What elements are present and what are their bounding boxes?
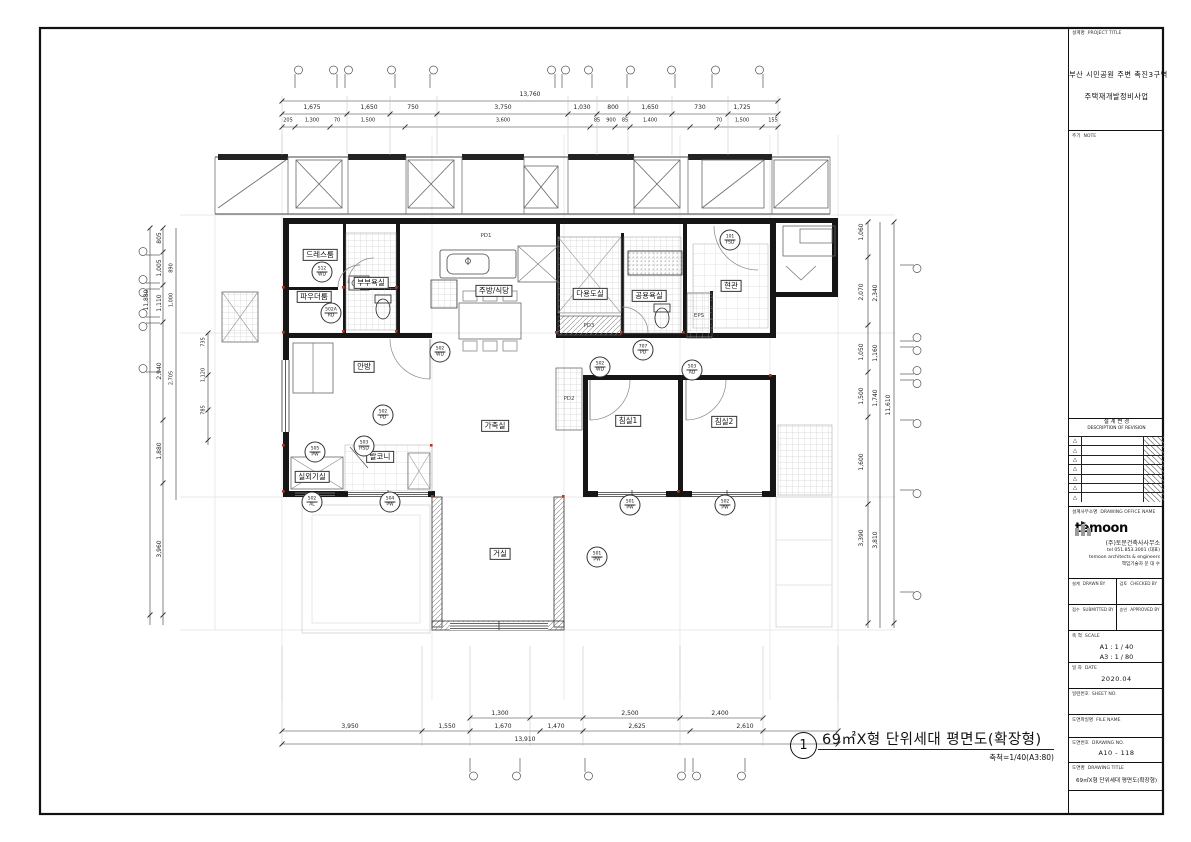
label-ko: 축 척 [1072, 634, 1082, 639]
revision-row: △ [1069, 492, 1164, 501]
label-ko: 설계사무소명 [1072, 510, 1097, 515]
tb-empty [1069, 790, 1164, 814]
tb-office-label: 설계사무소명DRAWING OFFICE NAME [1072, 509, 1155, 515]
revision-triangle-icon: △ [1069, 484, 1082, 492]
floor-plan-graphics [0, 0, 1191, 842]
tb-drawing-no: 도면번호DRAWING NO. A10 - 118 [1069, 737, 1164, 762]
tb-drawing-no-label: 도면번호DRAWING NO. [1072, 740, 1124, 746]
revision-row: △ [1069, 464, 1164, 473]
label-ko: 일 자 [1072, 666, 1082, 671]
revision-row: △ [1069, 455, 1164, 464]
label-en: DRAWN BY [1083, 581, 1105, 586]
office-name-en: temoon architects & engineers [1069, 555, 1160, 562]
revision-triangle-icon: △ [1069, 437, 1082, 445]
office-info: (주)토문건축사사무소 tel 051.853.3001 (대표) temoon… [1069, 539, 1164, 569]
tb-scale: 축 척SCALE A1 : 1 / 40 A3 : 1 / 80 [1069, 630, 1164, 662]
revision-hatch-cell [1143, 446, 1164, 454]
label-ko: 도면번호 [1072, 741, 1089, 746]
revision-hatch-cell [1143, 437, 1164, 445]
drawing-number: A10 - 118 [1069, 749, 1164, 757]
label-ko: 접수 [1072, 607, 1080, 612]
revision-triangle-icon: △ [1069, 465, 1082, 473]
label-en: DATE [1085, 666, 1097, 671]
living-balcony-walls [432, 497, 564, 630]
revision-hatch-cell [1143, 475, 1164, 483]
drawing-sheet: 13,760 1,675 1,650 750 3,750 1,030 800 1… [0, 0, 1191, 842]
revision-title-en: DESCRIPTION OF REVISION [1069, 426, 1164, 432]
drawn-by-cell: 설계DRAWN BY [1069, 578, 1117, 604]
revision-row: △ [1069, 445, 1164, 454]
signature-grid: 설계DRAWN BY 검토CHECKED BY 접수SUBMITTED BY 승… [1069, 578, 1164, 630]
label-en: FILE NAME [1096, 718, 1120, 723]
revision-desc-cell [1082, 465, 1143, 473]
revision-desc-cell [1082, 456, 1143, 464]
revision-desc-cell [1082, 493, 1143, 501]
office-tel: tel 051.853.3001 (대표) [1069, 548, 1160, 555]
tb-date: 일 자DATE 2020.04 [1069, 662, 1164, 688]
revision-hatch-cell [1143, 493, 1164, 501]
tb-signatures: 설계DRAWN BY 검토CHECKED BY 접수SUBMITTED BY 승… [1069, 578, 1164, 630]
revision-triangle-icon: △ [1069, 475, 1082, 483]
wet-areas [345, 233, 832, 495]
revision-desc-cell [1082, 446, 1143, 454]
submitted-by-cell: 접수SUBMITTED BY [1069, 604, 1117, 630]
label-en: DRAWING TITLE [1088, 766, 1124, 771]
label-en: SHEET NO. [1092, 692, 1117, 697]
label-en: SCALE [1085, 634, 1100, 639]
revision-triangle-icon: △ [1069, 456, 1082, 464]
tb-file-label: 도면파일명FILE NAME [1072, 717, 1121, 723]
tb-drawing-title-label: 도면명DRAWING TITLE [1072, 765, 1124, 771]
tb-revision: 설 계 변 경DESCRIPTION OF REVISION △ △ △ △ △… [1069, 418, 1164, 506]
revision-row: △ [1069, 436, 1164, 445]
label-en: NOTE [1083, 134, 1096, 139]
label-en: SUBMITTED BY [1083, 607, 1114, 612]
title-block: 설계명PROJECT TITLE 부산 시민공원 주변 촉진3구역 주택재개발정… [1068, 28, 1163, 814]
tb-note: 주기NOTE [1069, 130, 1164, 418]
office-logo: temoon [1075, 521, 1128, 536]
tb-drawing-title: 도면명DRAWING TITLE 69㎡X형 단위세대 평면도(확장형) [1069, 762, 1164, 790]
label-ko: 승인 [1120, 607, 1128, 612]
tb-project-label: 설계명PROJECT TITLE [1072, 30, 1121, 36]
tb-project: 설계명PROJECT TITLE 부산 시민공원 주변 촉진3구역 주택재개발정… [1069, 28, 1164, 130]
label-en: DRAWING OFFICE NAME [1100, 510, 1155, 515]
temoon-logo-icon [1075, 521, 1093, 536]
label-en: DRAWING NO. [1092, 741, 1124, 746]
label-ko: 도면명 [1072, 766, 1085, 771]
tb-note-label: 주기NOTE [1072, 133, 1096, 139]
sheet-border [40, 28, 1163, 814]
checked-by-cell: 검토CHECKED BY [1117, 578, 1165, 604]
revision-row: △ [1069, 483, 1164, 492]
label-ko: 설계명 [1072, 31, 1085, 36]
project-title-line1: 부산 시민공원 주변 촉진3구역 [1069, 70, 1164, 80]
revision-triangle-icon: △ [1069, 493, 1082, 501]
label-en: CHECKED BY [1130, 581, 1157, 586]
dimension-lines [148, 96, 897, 747]
tb-sheet-no: 일련번호SHEET NO. [1069, 688, 1164, 714]
revision-title-ko: 설 계 변 경 [1104, 419, 1130, 425]
scale-values: A1 : 1 / 40 A3 : 1 / 80 [1069, 642, 1164, 662]
tb-file-name: 도면파일명FILE NAME [1069, 714, 1164, 737]
tb-scale-label: 축 척SCALE [1072, 633, 1100, 639]
drawing-title-value: 69㎡X형 단위세대 평면도(확장형) [1069, 776, 1164, 784]
scale-a3: A3 : 1 / 80 [1069, 652, 1164, 662]
tb-office: 설계사무소명DRAWING OFFICE NAME temoon (주)토문건축… [1069, 506, 1164, 578]
project-title-line2: 주택재개발정비사업 [1069, 92, 1164, 102]
revision-desc-cell [1082, 437, 1143, 445]
revision-desc-cell [1082, 475, 1143, 483]
office-engineer: 책임기술자 문 대 수 [1069, 562, 1160, 569]
office-name: (주)토문건축사사무소 [1069, 539, 1160, 548]
tb-date-label: 일 자DATE [1072, 665, 1097, 671]
label-ko: 주기 [1072, 134, 1080, 139]
approved-by-cell: 승인APPROVED BY [1117, 604, 1165, 630]
revision-triangle-icon: △ [1069, 446, 1082, 454]
revision-hatch-cell [1143, 456, 1164, 464]
label-ko: 일련번호 [1072, 692, 1089, 697]
scale-a1: A1 : 1 / 40 [1069, 642, 1164, 652]
label-ko: 설계 [1072, 581, 1080, 586]
date-value: 2020.04 [1069, 675, 1164, 683]
revision-desc-cell [1082, 484, 1143, 492]
revision-hatch-cell [1143, 484, 1164, 492]
revision-table: △ △ △ △ △ △ △ [1069, 436, 1164, 502]
revision-hatch-cell [1143, 465, 1164, 473]
tb-sheet-no-label: 일련번호SHEET NO. [1072, 691, 1117, 697]
revision-row: △ [1069, 474, 1164, 483]
label-ko: 도면파일명 [1072, 718, 1093, 723]
label-en: PROJECT TITLE [1088, 31, 1122, 36]
revision-header: 설 계 변 경DESCRIPTION OF REVISION [1069, 419, 1164, 432]
label-ko: 검토 [1120, 581, 1128, 586]
label-en: APPROVED BY [1130, 607, 1159, 612]
